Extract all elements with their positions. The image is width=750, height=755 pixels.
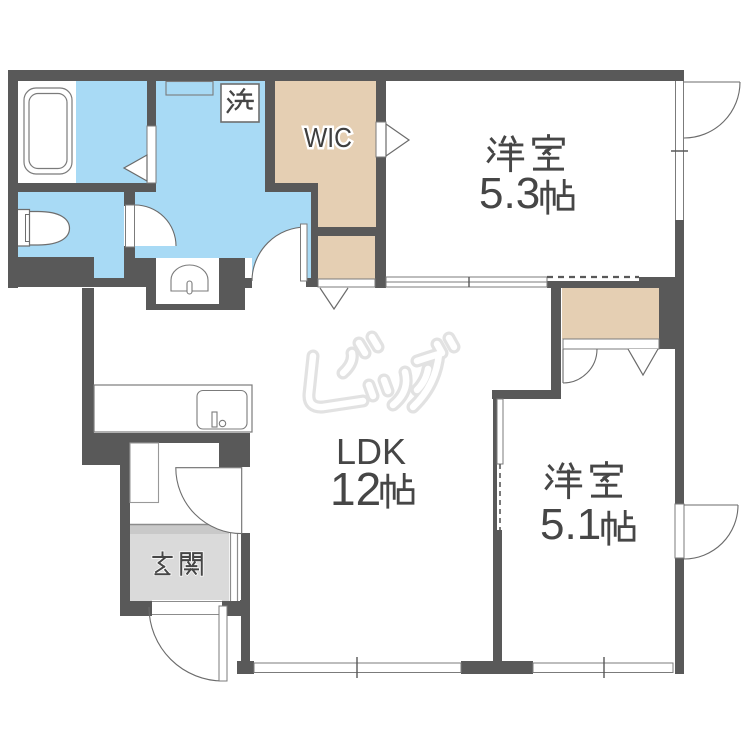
svg-text:WIC: WIC (304, 122, 352, 153)
svg-text:5.1: 5.1 (540, 500, 601, 549)
svg-text:5.3: 5.3 (479, 169, 540, 218)
svg-text:12: 12 (330, 463, 381, 515)
